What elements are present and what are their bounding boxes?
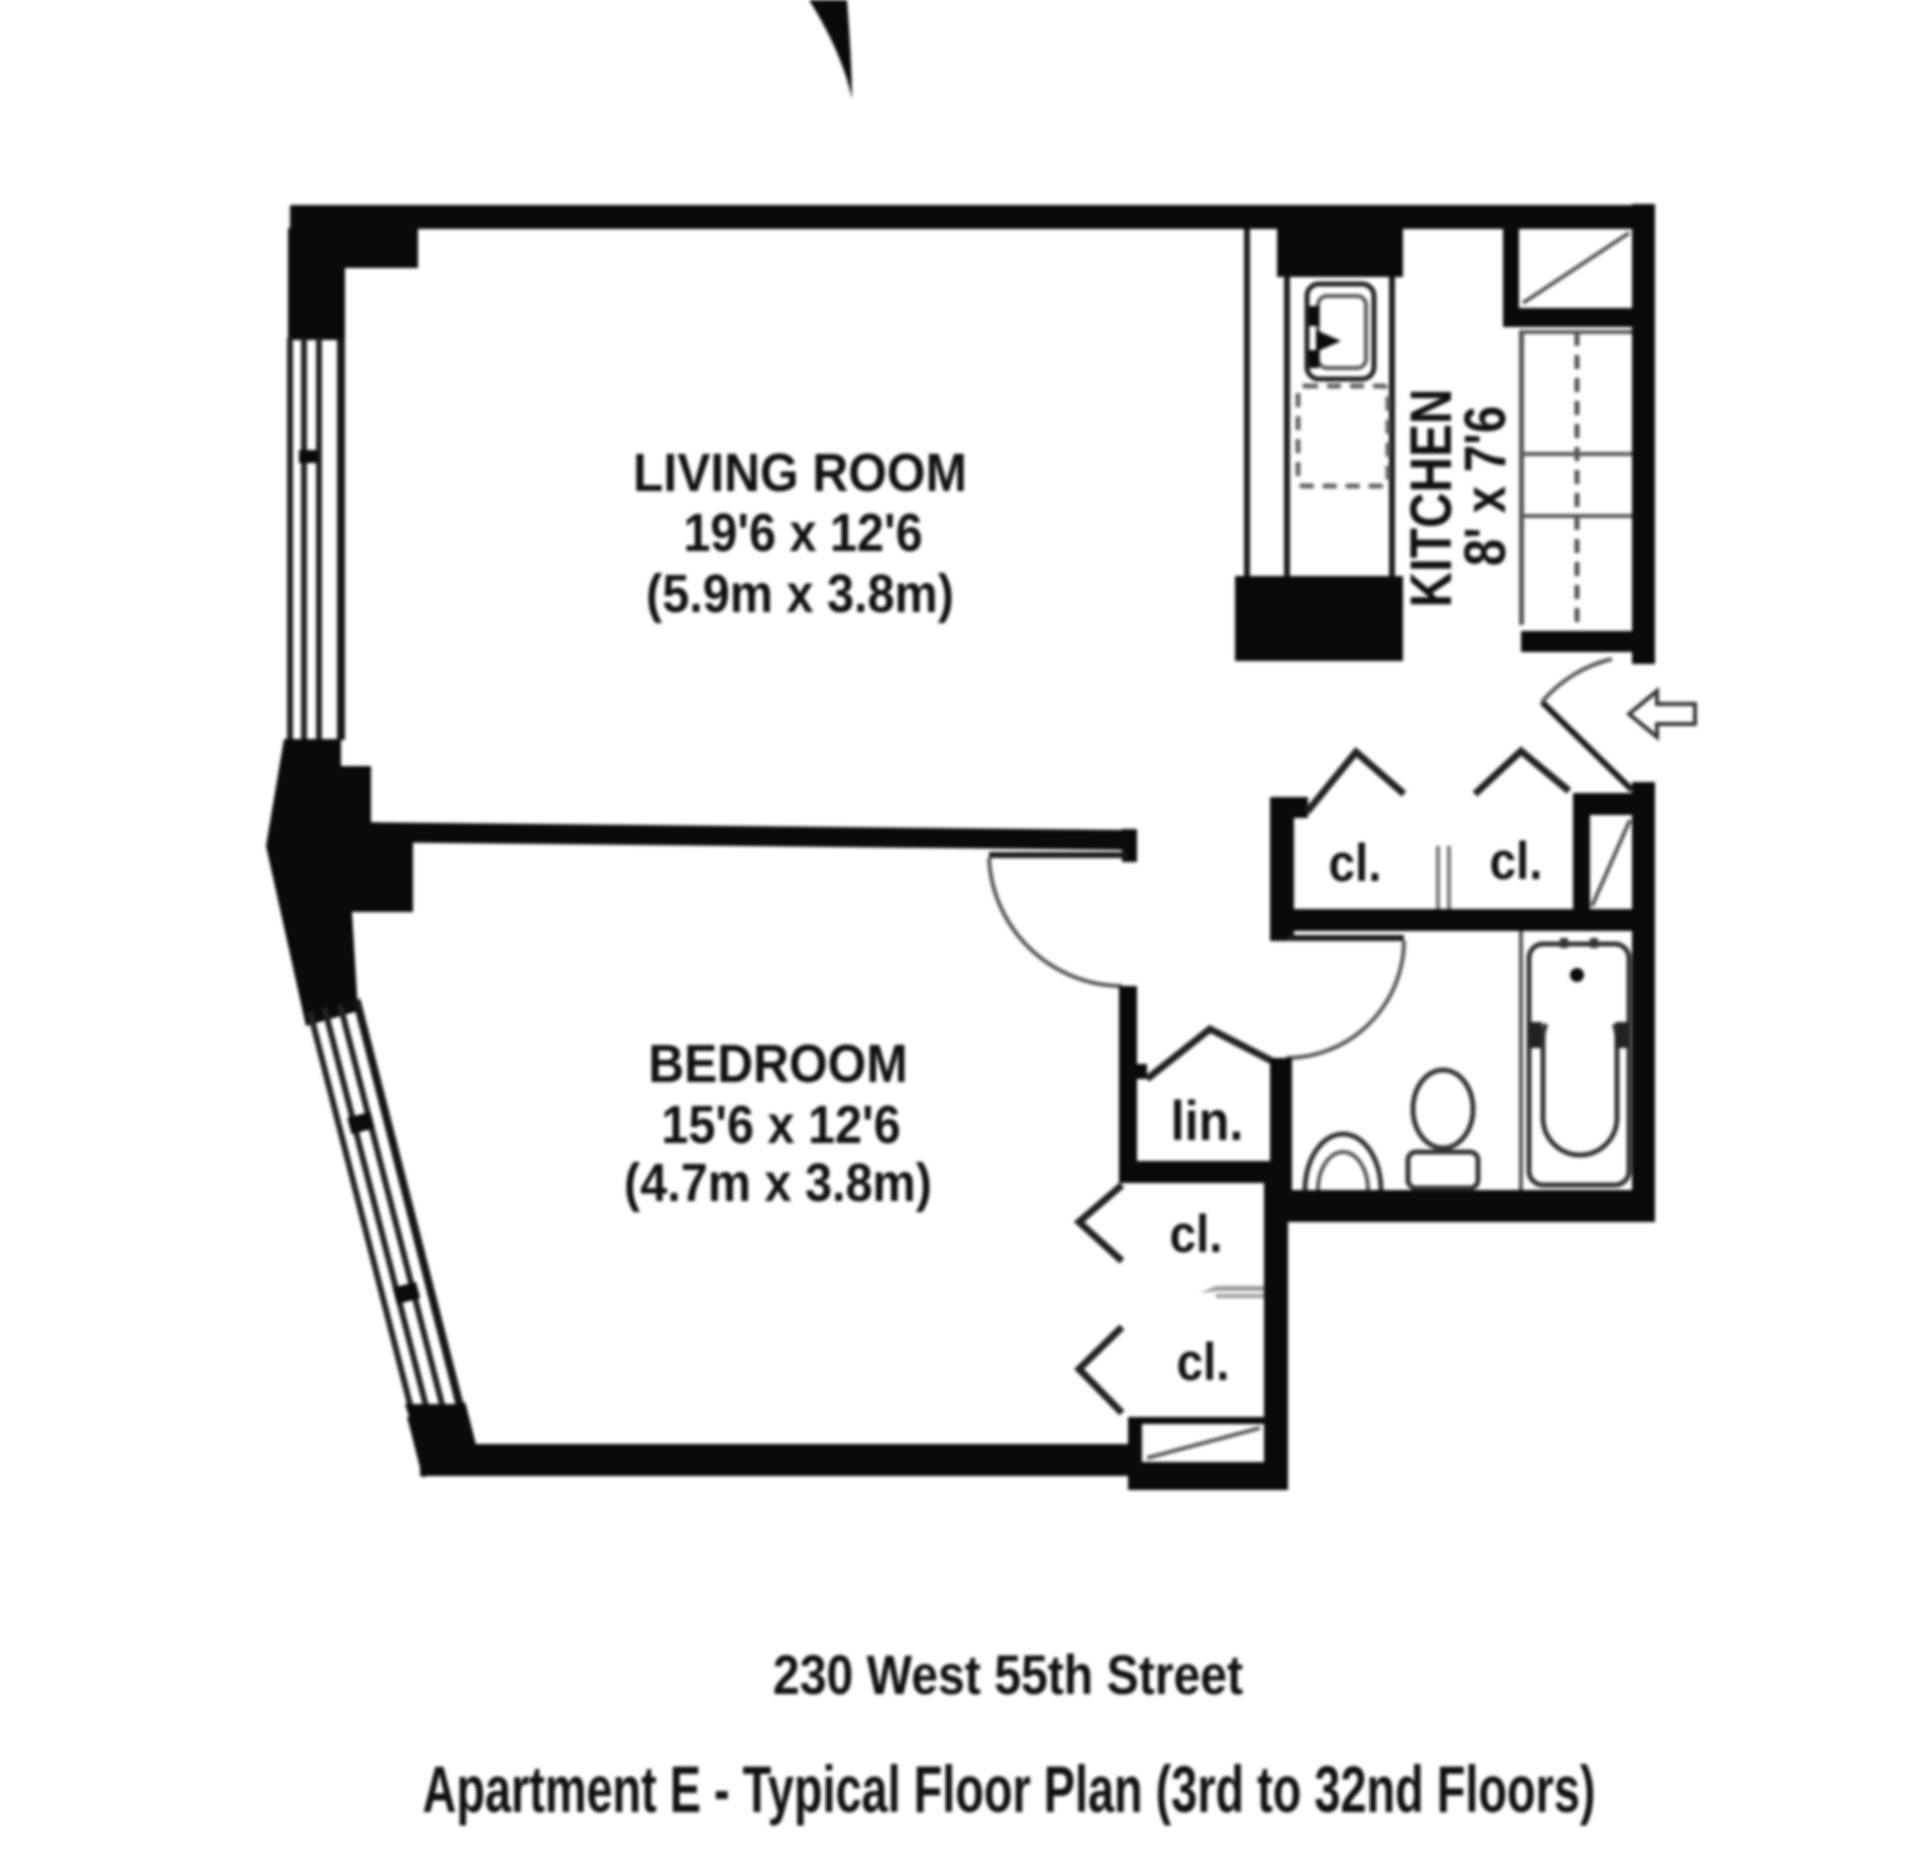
svg-text:cl.: cl. (1328, 833, 1381, 893)
svg-text:LIVING ROOM: LIVING ROOM (633, 442, 967, 502)
svg-text:lin.: lin. (1171, 1091, 1244, 1153)
svg-text:19'6 x 12'6: 19'6 x 12'6 (683, 502, 922, 563)
svg-text:8' x 7'6: 8' x 7'6 (1453, 406, 1518, 566)
svg-text:15'6 x 12'6: 15'6 x 12'6 (661, 1094, 900, 1155)
svg-text:Apartment E - Typical Floor Pl: Apartment E - Typical Floor Plan (3rd to… (422, 1753, 1595, 1827)
svg-text:(5.9m x 3.8m): (5.9m x 3.8m) (646, 563, 954, 624)
svg-text:(4.7m x 3.8m): (4.7m x 3.8m) (624, 1152, 932, 1213)
svg-text:cl.: cl. (1169, 1204, 1222, 1264)
svg-text:cl.: cl. (1489, 831, 1542, 891)
svg-text:cl.: cl. (1176, 1332, 1229, 1392)
svg-text:230 West 55th Street: 230 West 55th Street (773, 1645, 1243, 1707)
svg-text:BEDROOM: BEDROOM (648, 1033, 907, 1093)
